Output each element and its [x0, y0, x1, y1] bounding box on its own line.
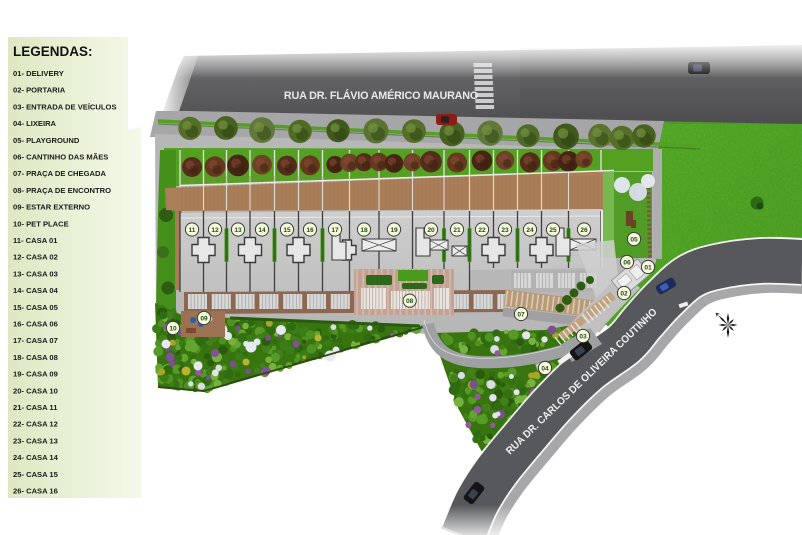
svg-text:06: 06 [623, 259, 631, 266]
svg-text:02- PORTARIA: 02- PORTARIA [13, 86, 66, 95]
svg-text:19- CASA 09: 19- CASA 09 [13, 370, 58, 379]
svg-text:22: 22 [478, 227, 486, 234]
svg-text:11- CASA 01: 11- CASA 01 [13, 236, 58, 245]
svg-text:01- DELIVERY: 01- DELIVERY [13, 69, 64, 78]
svg-text:11: 11 [189, 227, 196, 234]
svg-text:23- CASA 13: 23- CASA 13 [13, 436, 58, 445]
svg-text:13- CASA 03: 13- CASA 03 [13, 269, 58, 278]
svg-text:21- CASA 11: 21- CASA 11 [13, 403, 58, 412]
svg-text:05: 05 [630, 236, 638, 243]
svg-text:17- CASA 07: 17- CASA 07 [13, 336, 58, 345]
svg-text:03- ENTRADA DE VEÍCULOS: 03- ENTRADA DE VEÍCULOS [13, 102, 117, 111]
svg-text:15: 15 [283, 227, 291, 234]
svg-text:03: 03 [579, 333, 587, 340]
svg-text:14- CASA 04: 14- CASA 04 [13, 286, 59, 295]
svg-text:10: 10 [169, 325, 177, 332]
svg-text:21: 21 [453, 227, 461, 234]
svg-text:08: 08 [406, 298, 414, 305]
svg-text:LEGENDAS:: LEGENDAS: [13, 44, 93, 59]
svg-text:16- CASA 06: 16- CASA 06 [13, 320, 58, 329]
svg-text:12: 12 [211, 227, 219, 234]
svg-text:RUA DR. FLÁVIO AMÉRICO MAURANO: RUA DR. FLÁVIO AMÉRICO MAURANO [284, 89, 478, 102]
svg-text:20- CASA 10: 20- CASA 10 [13, 386, 58, 395]
svg-text:20: 20 [427, 227, 435, 234]
svg-text:17: 17 [331, 227, 339, 234]
svg-text:13: 13 [234, 227, 242, 234]
svg-text:25- CASA 15: 25- CASA 15 [13, 470, 59, 479]
svg-text:16: 16 [306, 227, 314, 234]
svg-text:07: 07 [517, 311, 525, 318]
svg-text:06- CANTINHO DAS MÃES: 06- CANTINHO DAS MÃES [13, 153, 108, 162]
svg-text:01: 01 [644, 264, 652, 271]
svg-text:07- PRAÇA DE CHEGADA: 07- PRAÇA DE CHEGADA [13, 169, 106, 178]
svg-text:14: 14 [258, 227, 266, 234]
svg-text:18- CASA 08: 18- CASA 08 [13, 353, 58, 362]
svg-text:05- PLAYGROUND: 05- PLAYGROUND [13, 136, 80, 145]
svg-text:24- CASA 14: 24- CASA 14 [13, 453, 59, 462]
svg-text:22- CASA 12: 22- CASA 12 [13, 420, 58, 429]
svg-text:12- CASA 02: 12- CASA 02 [13, 253, 58, 262]
svg-text:09- ESTAR EXTERNO: 09- ESTAR EXTERNO [13, 203, 90, 212]
svg-text:19: 19 [390, 227, 398, 234]
svg-text:04: 04 [541, 365, 549, 372]
svg-text:15- CASA 05: 15- CASA 05 [13, 303, 59, 312]
svg-text:18: 18 [360, 227, 368, 234]
svg-text:04- LIXEIRA: 04- LIXEIRA [13, 119, 57, 128]
svg-text:23: 23 [501, 227, 509, 234]
svg-text:09: 09 [200, 315, 208, 322]
svg-text:24: 24 [526, 227, 534, 234]
svg-text:02: 02 [620, 290, 628, 297]
svg-text:08- PRAÇA DE ENCONTRO: 08- PRAÇA DE ENCONTRO [13, 186, 111, 195]
svg-text:25: 25 [549, 227, 557, 234]
svg-text:10- PET PLACE: 10- PET PLACE [13, 219, 69, 228]
svg-text:26- CASA 16: 26- CASA 16 [13, 487, 58, 496]
svg-text:26: 26 [580, 227, 588, 234]
